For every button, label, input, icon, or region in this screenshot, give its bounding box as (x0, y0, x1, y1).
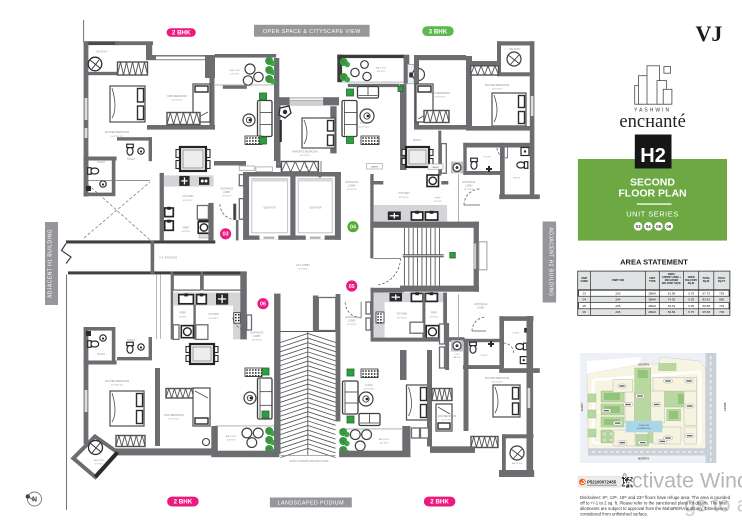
svg-text:LIFT LOBBY: LIFT LOBBY (296, 264, 310, 267)
svg-text:SQ.FT.: SQ.FT. (718, 280, 726, 283)
svg-text:3BHK: 3BHK (648, 298, 656, 302)
svg-text:2 BHK: 2 BHK (174, 499, 193, 506)
svg-text:706: 706 (719, 310, 724, 314)
svg-text:05: 05 (349, 284, 355, 290)
svg-text:CLUB HOUSE: CLUB HOUSE (639, 425, 649, 427)
svg-text:ELEVATOR: ELEVATOR (310, 207, 322, 210)
svg-text:5.75: 5.75 (688, 310, 694, 314)
svg-text:CABINET: CABINET (371, 166, 380, 169)
svg-text:12'0"X5'0": 12'0"X5'0" (226, 440, 235, 442)
svg-text:encнanté: encнanté (619, 112, 685, 132)
svg-text:LIVING: LIVING (365, 384, 373, 387)
svg-text:2 BHK: 2 BHK (172, 29, 191, 36)
svg-text:10'0"X11'10": 10'0"X11'10" (111, 136, 123, 138)
svg-text:PREP: PREP (431, 313, 438, 315)
svg-text:ENTRANCE: ENTRANCE (463, 181, 476, 184)
svg-text:MASTER BEDROOM: MASTER BEDROOM (485, 377, 509, 380)
svg-text:SQ.M.: SQ.M. (703, 280, 710, 283)
svg-text:69.58: 69.58 (702, 304, 710, 308)
svg-text:05: 05 (583, 304, 587, 308)
svg-text:10'0"X10'0": 10'0"X10'0" (434, 97, 445, 99)
svg-text:KIDS BEDROOM: KIDS BEDROOM (438, 415, 457, 418)
svg-text:DINING: DINING (413, 140, 421, 142)
svg-text:KITCHEN: KITCHEN (183, 195, 194, 198)
svg-text:10'0"X5'0": 10'0"X5'0" (379, 443, 388, 445)
svg-text:AREA STATEMENT: AREA STATEMENT (620, 258, 688, 267)
svg-text:CODE: CODE (581, 279, 589, 283)
svg-text:6.39: 6.39 (688, 304, 694, 308)
svg-text:2 BHK: 2 BHK (430, 499, 449, 506)
svg-text:6'0"X10'0": 6'0"X10'0" (252, 340, 262, 342)
svg-text:59.83: 59.83 (668, 310, 676, 314)
svg-text:UNIT NO: UNIT NO (612, 278, 625, 282)
svg-text:H2: H2 (640, 145, 666, 167)
svg-text:10'0"X10'0": 10'0"X10'0" (168, 419, 179, 421)
svg-text:BALCONY: BALCONY (376, 67, 387, 70)
svg-text:ENTRANCE: ENTRANCE (251, 332, 264, 335)
svg-text:Disclaimer: 8ᵗʰ, 13ᵗʰ, 18ᵗʰ an: Disclaimer: 8ᵗʰ, 13ᵗʰ, 18ᵗʰ and 23ʳᵈ flo… (580, 495, 731, 500)
svg-text:P52100072455: P52100072455 (587, 479, 617, 484)
svg-text:off to +/-1 to 2 sq. ft. Pleas: off to +/-1 to 2 sq. ft. Please refer to… (580, 501, 727, 506)
svg-text:PREP: PREP (183, 228, 190, 230)
svg-text:OPEN SPACE & CITYSCAPE VIEW: OPEN SPACE & CITYSCAPE VIEW (263, 29, 361, 35)
svg-text:10'0"X11'8": 10'0"X11'8" (492, 382, 503, 384)
svg-text:2BHK: 2BHK (648, 291, 656, 295)
svg-text:65.58: 65.58 (702, 310, 710, 314)
svg-text:LOBBY: LOBBY (348, 186, 356, 188)
svg-text:2BHK: 2BHK (648, 304, 656, 308)
svg-text:895: 895 (719, 298, 724, 302)
svg-text:203: 203 (615, 291, 620, 295)
svg-text:LANDSCAPED PODIUM: LANDSCAPED PODIUM (278, 501, 345, 507)
svg-text:LIVING: LIVING (360, 122, 368, 125)
svg-text:74.03: 74.03 (668, 298, 676, 302)
svg-text:BALCONY: BALCONY (230, 69, 241, 72)
svg-text:TOILET: TOILET (513, 178, 521, 180)
svg-text:KIDS BEDROOM: KIDS BEDROOM (430, 92, 449, 95)
svg-text:204: 204 (615, 298, 620, 302)
svg-text:5.76: 5.76 (688, 291, 694, 295)
svg-text:06: 06 (666, 224, 671, 229)
svg-text:ENTRANCE: ENTRANCE (346, 181, 359, 184)
svg-text:4'0"X5'5": 4'0"X5'5" (430, 316, 439, 318)
svg-text:10'0"X5'0": 10'0"X5'0" (376, 71, 385, 73)
svg-text:MASTER BEDROOM: MASTER BEDROOM (105, 380, 129, 383)
svg-text:CABINET: CABINET (432, 166, 441, 169)
svg-text:UNIT SERIES: UNIT SERIES (626, 210, 678, 219)
svg-text:03: 03 (583, 291, 587, 295)
svg-text:LOFT: LOFT (454, 354, 460, 356)
svg-text:4'0"X5'5": 4'0"X5'5" (434, 201, 442, 203)
svg-text:3'-6" PASSAGE: 3'-6" PASSAGE (159, 256, 177, 260)
svg-text:considered from unfinished sur: considered from unfinished surface. (580, 512, 648, 517)
svg-text:03: 03 (223, 232, 229, 238)
svg-text:ENTRANCE: ENTRANCE (221, 188, 234, 191)
svg-text:VJ: VJ (696, 21, 723, 46)
svg-text:WEST: WEST (723, 403, 727, 412)
svg-text:Activate Wind: Activate Wind (618, 469, 742, 493)
svg-text:4'0"X5'5": 4'0"X5'5" (178, 316, 187, 318)
svg-text:ENTRANCE: ENTRANCE (346, 316, 359, 319)
svg-text:6'0"X10'0": 6'0"X10'0" (347, 324, 357, 326)
svg-text:4'11"X5'0": 4'11"X5'0" (231, 74, 240, 76)
svg-text:BALCONY: BALCONY (379, 438, 390, 441)
svg-text:6'0"X10'0": 6'0"X10'0" (347, 189, 357, 191)
svg-text:FLOOR PLAN: FLOOR PLAN (618, 188, 686, 200)
svg-text:ELEVATOR: ELEVATOR (264, 207, 276, 210)
svg-text:ABOVE: ABOVE (454, 356, 462, 359)
svg-text:8'0"X10'0": 8'0"X10'0" (397, 317, 407, 319)
svg-text:04: 04 (350, 225, 356, 231)
svg-text:8'0"X10'7": 8'0"X10'7" (209, 318, 219, 320)
svg-text:TOILET: TOILET (97, 162, 106, 164)
svg-text:10'0"X10'0": 10'0"X10'0" (358, 127, 369, 129)
svg-text:205: 205 (615, 304, 620, 308)
svg-text:KIDS BEDROOM: KIDS BEDROOM (167, 95, 186, 98)
svg-text:EAST: EAST (580, 403, 584, 411)
svg-text:PARENTS BEDROOM: PARENTS BEDROOM (292, 151, 317, 154)
svg-text:LOBBY: LOBBY (465, 186, 473, 188)
svg-text:61.99: 61.99 (668, 291, 676, 295)
svg-text:04: 04 (646, 224, 651, 229)
svg-text:ADJACENT H2 BUILDING: ADJACENT H2 BUILDING (547, 227, 553, 296)
svg-text:10'0"X10'0": 10'0"X10'0" (171, 100, 182, 102)
svg-text:6'6"X6'6": 6'6"X6'6" (95, 463, 103, 465)
svg-text:SQ.M.: SQ.M. (688, 282, 695, 285)
svg-text:12'0"X9'4": 12'0"X9'4" (298, 269, 308, 271)
svg-text:LOBBY: LOBBY (477, 308, 485, 310)
svg-text:ENTRY TOWARDS SECOND FLOOR: ENTRY TOWARDS SECOND FLOOR (290, 460, 329, 463)
svg-text:749: 749 (719, 304, 724, 308)
svg-text:ADJACENT H1 BUILDING: ADJACENT H1 BUILDING (48, 229, 54, 298)
svg-text:06: 06 (583, 310, 587, 314)
svg-text:6'0"X10'0": 6'0"X10'0" (464, 189, 474, 191)
svg-text:LOBBY: LOBBY (348, 320, 356, 322)
svg-text:TOILET: TOILET (512, 333, 520, 335)
svg-text:TOILET: TOILET (127, 340, 136, 342)
svg-text:LOBBY: LOBBY (253, 336, 261, 338)
svg-text:3 BHK: 3 BHK (429, 28, 448, 35)
svg-text:allotments are subject to appr: allotments are subject to approval from … (580, 506, 727, 511)
svg-text:BALCONY SQ.M.: BALCONY SQ.M. (662, 282, 682, 285)
svg-text:TOILET: TOILET (480, 355, 488, 357)
svg-text:06: 06 (260, 302, 266, 308)
svg-text:TOILET: TOILET (97, 354, 106, 356)
svg-text:PREP: PREP (435, 198, 441, 200)
svg-text:KITCHEN: KITCHEN (208, 313, 219, 316)
svg-text:6'0"X10'0": 6'0"X10'0" (222, 196, 232, 198)
svg-text:10'0"X10'0": 10'0"X10'0" (441, 420, 452, 422)
svg-text:BALCONY: BALCONY (226, 435, 237, 438)
svg-text:729: 729 (719, 291, 724, 295)
svg-text:& SWIMMING POOL: & SWIMMING POOL (637, 428, 651, 430)
svg-text:10'0"X11'10": 10'0"X11'10" (111, 385, 123, 387)
svg-text:10'0"X11'8": 10'0"X11'8" (492, 89, 503, 91)
svg-text:03: 03 (636, 224, 641, 229)
svg-text:MASTER BEDROOM: MASTER BEDROOM (485, 84, 509, 87)
svg-text:67.75: 67.75 (702, 291, 710, 295)
svg-text:BALCONY: BALCONY (510, 48, 521, 51)
svg-text:05: 05 (656, 224, 661, 229)
svg-text:ENTRANCE: ENTRANCE (475, 303, 488, 306)
svg-text:8'0"X10'7": 8'0"X10'7" (183, 200, 193, 202)
svg-text:PREP: PREP (180, 313, 187, 315)
svg-text:BALCONY: BALCONY (512, 462, 523, 465)
svg-text:NORTH: NORTH (638, 457, 649, 461)
svg-text:83.42: 83.42 (702, 298, 710, 302)
svg-text:BALCONY: BALCONY (97, 51, 108, 54)
svg-text:MASTER BEDROOM: MASTER BEDROOM (105, 131, 129, 134)
svg-text:206: 206 (615, 310, 620, 314)
svg-text:KIDS BEDROOM: KIDS BEDROOM (164, 414, 183, 417)
svg-text:10'0"X10'0": 10'0"X10'0" (363, 389, 374, 391)
svg-text:10'0"X11'0": 10'0"X11'0" (300, 155, 311, 157)
svg-text:4'0"X5'5": 4'0"X5'5" (182, 231, 191, 233)
svg-text:KITCHEN: KITCHEN (399, 192, 410, 195)
svg-text:BALCONY: BALCONY (94, 459, 105, 462)
svg-text:63.19: 63.19 (668, 304, 676, 308)
svg-text:2BHK: 2BHK (648, 310, 656, 314)
svg-text:TOILET: TOILET (483, 157, 491, 159)
svg-text:TOILET: TOILET (127, 159, 136, 161)
svg-text:SOUTH: SOUTH (638, 363, 649, 367)
svg-text:9.39: 9.39 (688, 298, 694, 302)
svg-text:LOBBY: LOBBY (223, 192, 231, 194)
svg-text:04: 04 (583, 298, 587, 302)
svg-text:KITCHEN: KITCHEN (397, 313, 408, 316)
svg-text:8'0"X10'0": 8'0"X10'0" (399, 197, 409, 199)
svg-text:TYPE: TYPE (649, 279, 656, 283)
